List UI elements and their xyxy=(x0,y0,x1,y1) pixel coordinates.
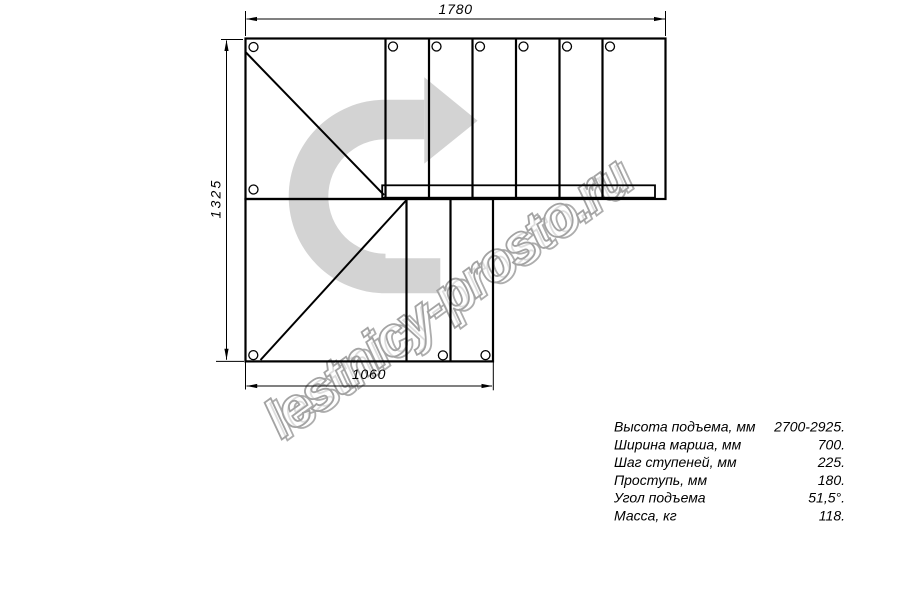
svg-text:700.: 700. xyxy=(818,436,845,452)
svg-text:180.: 180. xyxy=(818,472,845,488)
svg-text:2700-2925.: 2700-2925. xyxy=(773,419,845,435)
svg-text:118.: 118. xyxy=(819,507,845,523)
svg-text:Шаг ступеней, мм: Шаг ступеней, мм xyxy=(614,454,737,470)
svg-text:Масса, кг: Масса, кг xyxy=(614,507,677,523)
svg-text:1060: 1060 xyxy=(352,366,386,382)
svg-text:51,5°.: 51,5°. xyxy=(808,490,845,506)
svg-text:1780: 1780 xyxy=(439,1,473,17)
svg-text:Проступь, мм: Проступь, мм xyxy=(614,472,708,488)
svg-text:Угол подъема: Угол подъема xyxy=(613,490,706,506)
svg-text:Ширина марша, мм: Ширина марша, мм xyxy=(614,436,742,452)
svg-text:225.: 225. xyxy=(817,454,845,470)
svg-text:Высота подъема, мм: Высота подъема, мм xyxy=(614,419,756,435)
svg-text:1325: 1325 xyxy=(208,179,224,219)
